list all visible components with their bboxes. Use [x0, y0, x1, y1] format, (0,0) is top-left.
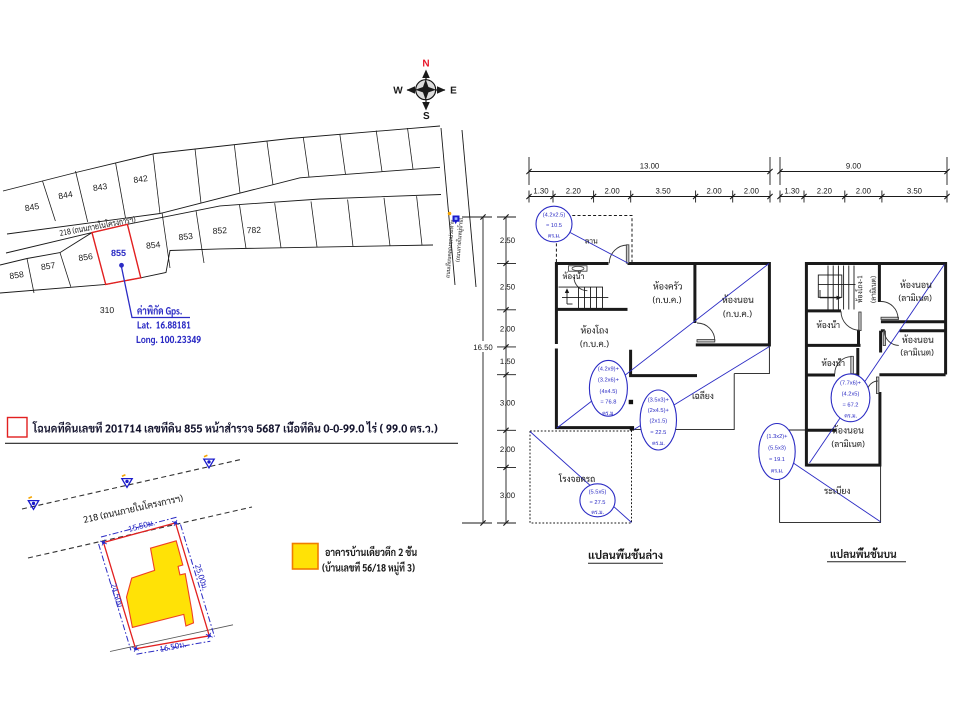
svg-text:= 27.5: = 27.5	[590, 500, 606, 506]
svg-text:W: W	[393, 86, 403, 97]
svg-text:1.30: 1.30	[533, 186, 549, 195]
svg-text:3.50: 3.50	[656, 186, 672, 195]
svg-text:854: 854	[146, 239, 162, 250]
svg-text:E: E	[450, 86, 457, 97]
svg-text:3.00: 3.00	[500, 491, 516, 500]
svg-text:2.00: 2.00	[605, 186, 621, 195]
svg-text:(3.5x3)+: (3.5x3)+	[648, 397, 670, 404]
svg-text:853: 853	[178, 231, 194, 242]
svg-text:782: 782	[246, 225, 261, 236]
svg-text:843: 843	[92, 181, 108, 193]
svg-text:2.20: 2.20	[566, 186, 582, 195]
svg-text:857: 857	[40, 260, 56, 272]
svg-text:(1.3x2)+: (1.3x2)+	[766, 433, 788, 440]
svg-text:2.50: 2.50	[500, 283, 516, 292]
svg-text:2.00: 2.00	[500, 324, 516, 333]
svg-text:310: 310	[100, 305, 115, 315]
svg-text:2.00: 2.00	[744, 186, 760, 195]
svg-text:(7.7x6)+: (7.7x6)+	[840, 380, 862, 387]
svg-text:(5.5x5): (5.5x5)	[589, 489, 607, 496]
svg-text:16.50: 16.50	[473, 343, 493, 352]
svg-text:855: 855	[111, 248, 126, 258]
svg-text:2.00: 2.00	[707, 186, 723, 195]
svg-text:1.50: 1.50	[500, 357, 516, 366]
svg-text:852: 852	[212, 225, 227, 236]
svg-text:= 67.2: = 67.2	[843, 403, 859, 409]
svg-text:2.50: 2.50	[500, 236, 516, 245]
svg-text:N: N	[422, 59, 429, 70]
svg-text:2.00: 2.00	[500, 445, 516, 454]
svg-text:(4.2x2.5): (4.2x2.5)	[543, 212, 566, 219]
svg-text:3.50: 3.50	[907, 186, 923, 195]
svg-text:= 76.8: = 76.8	[600, 400, 616, 406]
svg-text:(3.2x6)+: (3.2x6)+	[598, 377, 620, 384]
svg-text:(4.2x9)+: (4.2x9)+	[598, 366, 620, 373]
svg-text:2.00: 2.00	[856, 186, 872, 195]
svg-text:(2x4.5)+: (2x4.5)+	[648, 407, 670, 414]
svg-text:(4.2x5): (4.2x5)	[842, 391, 860, 398]
svg-text:3.00: 3.00	[500, 399, 516, 408]
svg-text:(2x1.5): (2x1.5)	[649, 418, 667, 425]
svg-text:9.00: 9.00	[846, 161, 862, 170]
svg-text:S: S	[423, 111, 430, 122]
svg-text:842: 842	[133, 173, 149, 185]
svg-text:= 19.1: = 19.1	[769, 457, 785, 463]
svg-text:858: 858	[9, 269, 25, 281]
svg-text:(4x4.5): (4x4.5)	[600, 388, 618, 395]
svg-text:= 10.5: = 10.5	[546, 223, 562, 229]
svg-text:= 22.5: = 22.5	[650, 430, 666, 436]
svg-text:1.30: 1.30	[784, 186, 800, 195]
svg-text:13.00: 13.00	[640, 161, 660, 170]
svg-text:856: 856	[78, 251, 94, 263]
svg-text:2.20: 2.20	[817, 186, 833, 195]
svg-text:(5.5x3): (5.5x3)	[768, 445, 786, 452]
